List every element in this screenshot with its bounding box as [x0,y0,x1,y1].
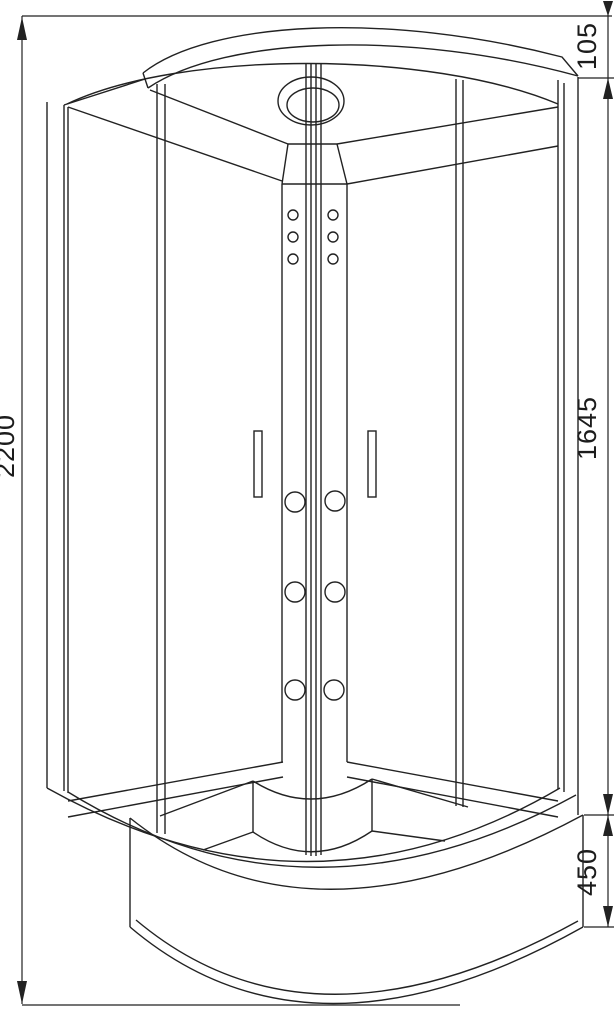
left-door-handle [254,431,262,497]
shower-cabin-drawing: 2200 105 1645 450 [0,0,615,1010]
arrow-up-icon [17,17,27,40]
arrow-down-icon [17,981,27,1004]
arrow-down-icon [603,1,613,16]
right-door-handle [368,431,376,497]
dimension-label-105: 105 [572,22,602,70]
arrow-down-icon [603,906,613,927]
door-mullions [157,79,463,834]
extension-lines [22,16,614,1005]
seat [160,779,468,852]
door-handles [254,431,376,497]
shower-head-inner-ring [287,88,339,122]
arrow-up-icon [603,78,613,99]
shower-tray [47,788,583,1004]
arrow-down-icon [603,794,613,815]
back-wall-edges [68,90,558,817]
dimension-label-1645: 1645 [572,396,602,460]
body-massage-jets [285,491,345,700]
upper-jet-nozzles [288,210,338,264]
dimension-overall-height: 2200 [0,16,27,1004]
technical-drawing-page: 2200 105 1645 450 [0,0,615,1010]
shower-column [278,64,347,856]
dimension-label-2200: 2200 [0,414,20,478]
arrow-up-icon [603,815,613,836]
left-wall-frame [47,102,68,793]
dimension-label-450: 450 [572,848,602,896]
